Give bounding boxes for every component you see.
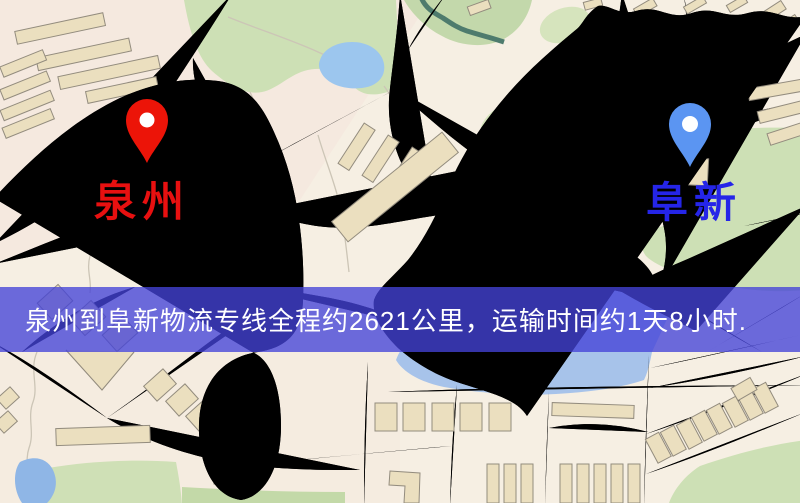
pin-hole bbox=[682, 116, 698, 132]
route-info-banner: 泉州到阜新物流专线全程约2621公里，运输时间约1天8小时. bbox=[0, 287, 800, 352]
route-info-text: 泉州到阜新物流专线全程约2621公里，运输时间约1天8小时. bbox=[0, 301, 747, 338]
origin-label: 泉州 bbox=[94, 178, 190, 225]
pin-hole bbox=[140, 113, 155, 128]
destination-label: 阜新 bbox=[646, 179, 742, 226]
map-view[interactable]: 泉州 阜新 泉州到阜新物流专线全程约2621公里，运输时间约1天8小时. bbox=[0, 0, 800, 503]
map-background: 泉州 阜新 bbox=[0, 0, 800, 503]
